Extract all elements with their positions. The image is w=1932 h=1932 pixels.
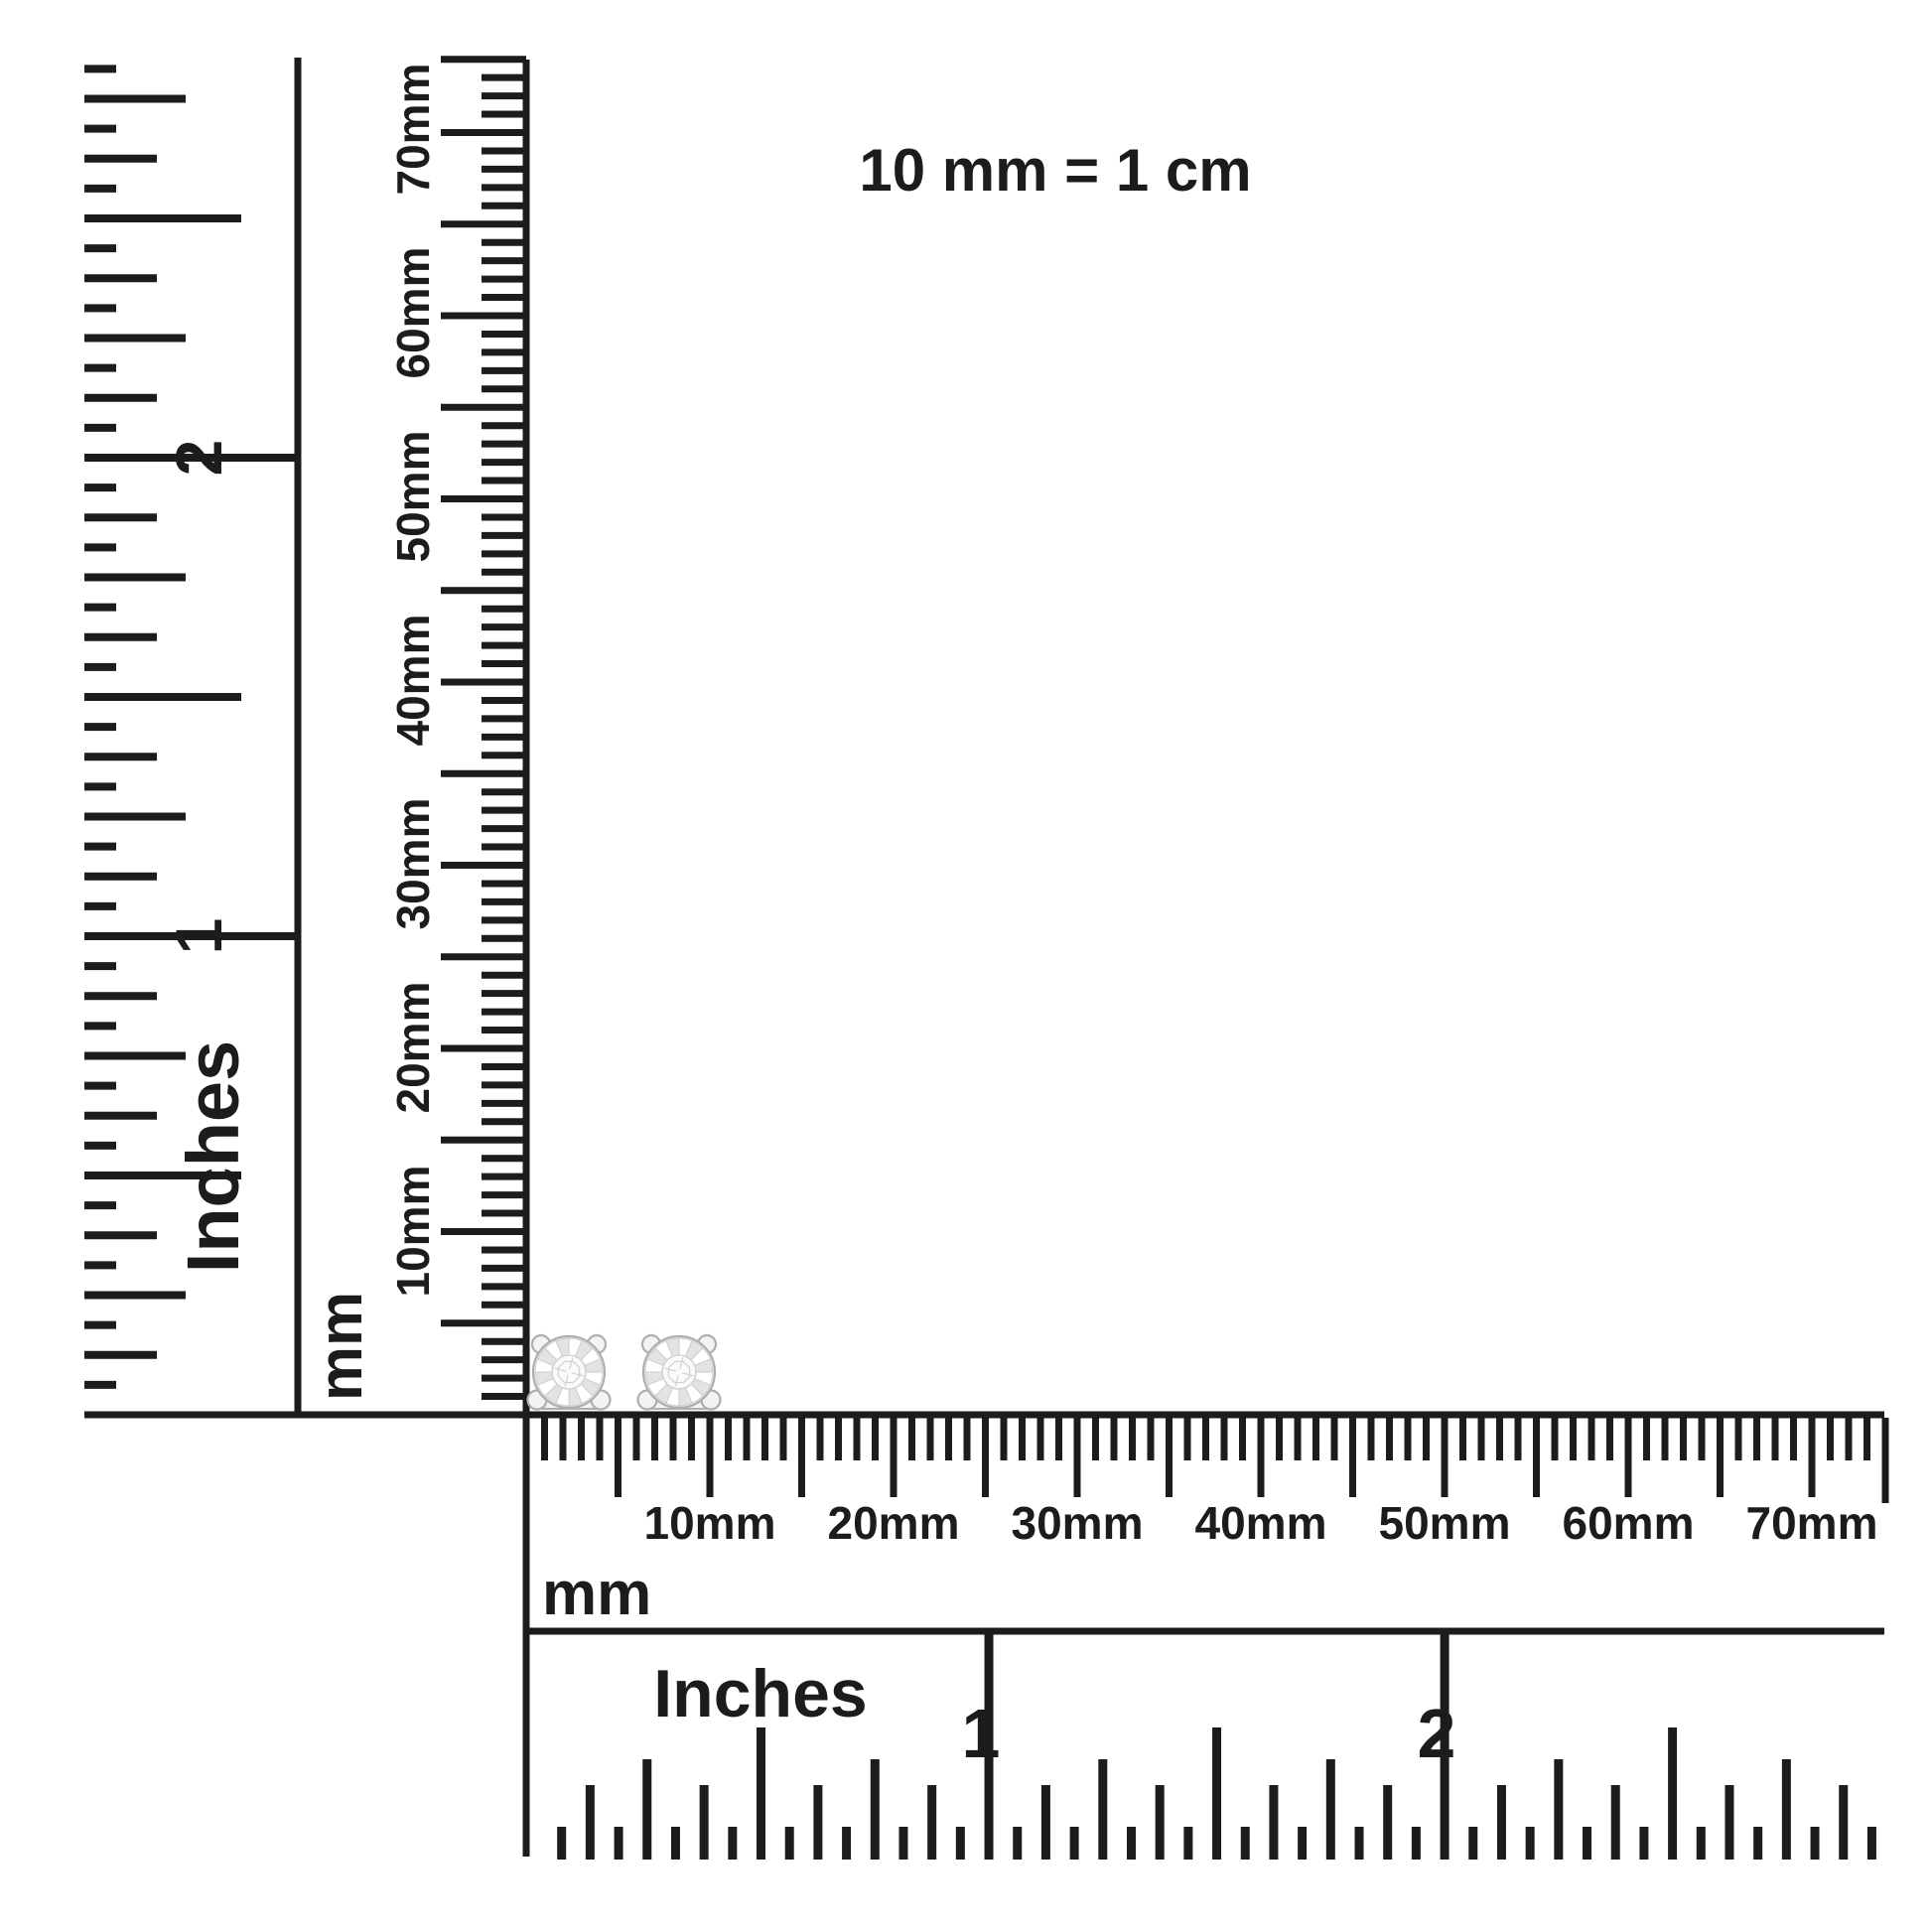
hmm-label-30: 30mm (993, 1499, 1162, 1547)
horizontal-inches-unit-label: Inches (614, 1659, 907, 1729)
vmm-label-60: 60mm (389, 228, 435, 397)
diamond (662, 1355, 696, 1389)
vmm-label-30: 30mm (389, 779, 435, 948)
vinch-number-2: 2 (165, 423, 236, 492)
diamond-stud-earring (638, 1335, 721, 1410)
hinch-number-2: 2 (1402, 1698, 1471, 1771)
vmm-label-10: 10mm (389, 1147, 435, 1315)
vinch-number-1: 1 (165, 901, 236, 971)
hmm-label-20: 20mm (809, 1499, 978, 1547)
scale-diagram: 10 mm = 1 cm 10mm 20mm 30mm 40mm 50mm 60… (0, 0, 1932, 1932)
diamond (552, 1355, 586, 1389)
vertical-mm-ruler (441, 60, 526, 1397)
ruler-frame (84, 58, 1884, 1857)
hmm-label-40: 40mm (1176, 1499, 1345, 1547)
vertical-mm-unit-label: mm (309, 1277, 370, 1416)
vmm-label-70: 70mm (389, 45, 435, 213)
hmm-label-60: 60mm (1544, 1499, 1713, 1547)
ruler-ink-layer (0, 0, 1932, 1932)
horizontal-mm-ruler (545, 1418, 1886, 1503)
vmm-label-40: 40mm (389, 596, 435, 764)
vmm-label-50: 50mm (389, 412, 435, 581)
vmm-label-20: 20mm (389, 963, 435, 1132)
diamond-stud-earring (528, 1335, 611, 1410)
hinch-number-1: 1 (946, 1698, 1016, 1771)
hmm-label-50: 50mm (1360, 1499, 1529, 1547)
scale-note: 10 mm = 1 cm (758, 139, 1353, 202)
hmm-label-10: 10mm (625, 1499, 794, 1547)
hmm-label-70: 70mm (1727, 1499, 1896, 1547)
horizontal-mm-unit-label: mm (542, 1562, 760, 1626)
vertical-inches-unit-label: Inches (175, 1010, 248, 1304)
